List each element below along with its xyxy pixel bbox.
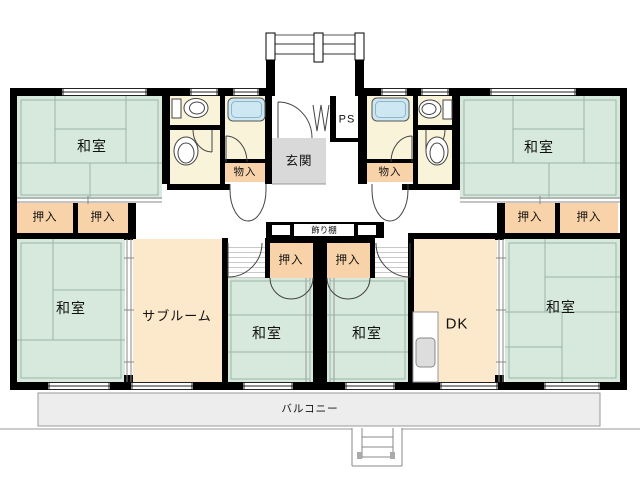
label-monoire-left: 物入 [234, 167, 257, 178]
label-washitsu-top-right: 和室 [524, 140, 554, 154]
label-washitsu-bottom-left: 和室 [56, 301, 86, 315]
room-washroom-left [170, 130, 220, 184]
label-oshiire-center-left: 押入 [279, 255, 304, 267]
bifold-door [313, 105, 329, 131]
porch-railing [266, 33, 364, 96]
label-washitsu-bottom-right: 和室 [546, 300, 576, 314]
entry-floorboards-right [371, 243, 408, 278]
room-dining-kitchen [414, 239, 497, 382]
monoire-left-doors [230, 184, 266, 221]
label-monoire-right: 物入 [379, 167, 402, 178]
label-oshiire-top-left-1: 押入 [33, 212, 58, 224]
label-pipe-space: PS [339, 115, 356, 126]
label-entrance: 玄関 [285, 155, 312, 168]
label-washitsu-center-left: 和室 [252, 326, 282, 340]
room-toilet-left [170, 96, 220, 125]
label-dining-kitchen: DK [446, 317, 469, 332]
label-oshiire-top-right-1: 押入 [518, 212, 543, 224]
label-kazaridana: 飾り棚 [311, 226, 337, 235]
room-bath-right [367, 96, 413, 159]
monoire-right-doors [372, 184, 408, 221]
label-subroom: サブルーム [142, 310, 212, 323]
room-washroom-right [418, 130, 452, 184]
label-oshiire-center-right: 押入 [336, 255, 361, 267]
floor-plan: 和室 和室 和室 和室 和室 和室 サブルーム DK 玄関 PS 押入 押入 押… [0, 0, 640, 480]
label-washitsu-top-left: 和室 [77, 139, 107, 153]
room-bath-left [225, 96, 265, 159]
label-washitsu-center-right: 和室 [352, 326, 382, 340]
entry-floorboards-left [228, 243, 265, 278]
exterior-stairs [352, 428, 402, 466]
room-toilet-right [418, 96, 452, 125]
label-oshiire-top-left-2: 押入 [91, 212, 116, 224]
label-balcony: バルコニー [281, 404, 338, 415]
label-oshiire-top-right-2: 押入 [577, 212, 602, 224]
front-door [278, 102, 312, 138]
